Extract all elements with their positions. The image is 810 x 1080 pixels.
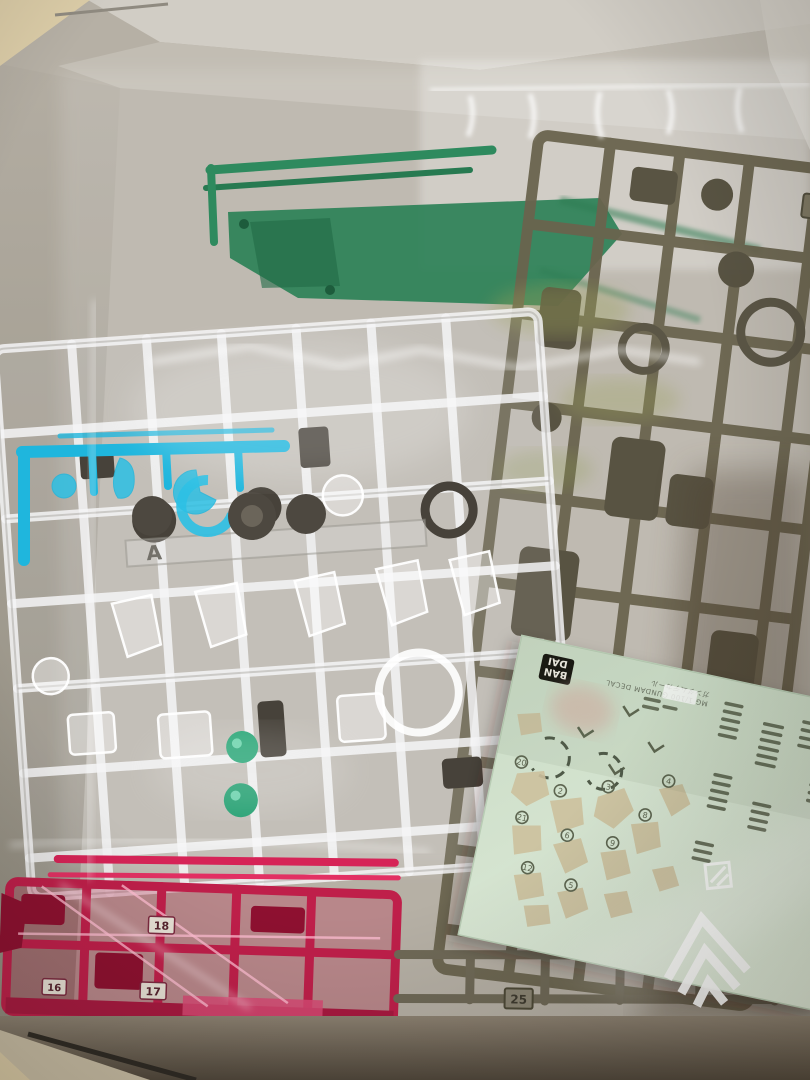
- svg-text:16: 16: [47, 983, 61, 994]
- clear-red-runner: 18 17 16: [0, 849, 399, 1027]
- runner-tag-17: 17: [140, 982, 167, 1000]
- runner-tag-25: 25: [504, 988, 532, 1008]
- photo-model-kit-box: Opened model-kit box containing plastic-…: [0, 0, 810, 1080]
- svg-text:25: 25: [510, 992, 527, 1006]
- runner-tag-a-label: A: [146, 540, 164, 565]
- runner-tag-16: 16: [42, 979, 67, 996]
- photo-canvas: H1: [0, 0, 810, 1080]
- svg-text:18: 18: [154, 919, 170, 933]
- runner-tag-18: 18: [148, 916, 175, 934]
- box-front-shadow: [0, 1016, 810, 1080]
- svg-text:17: 17: [145, 985, 161, 999]
